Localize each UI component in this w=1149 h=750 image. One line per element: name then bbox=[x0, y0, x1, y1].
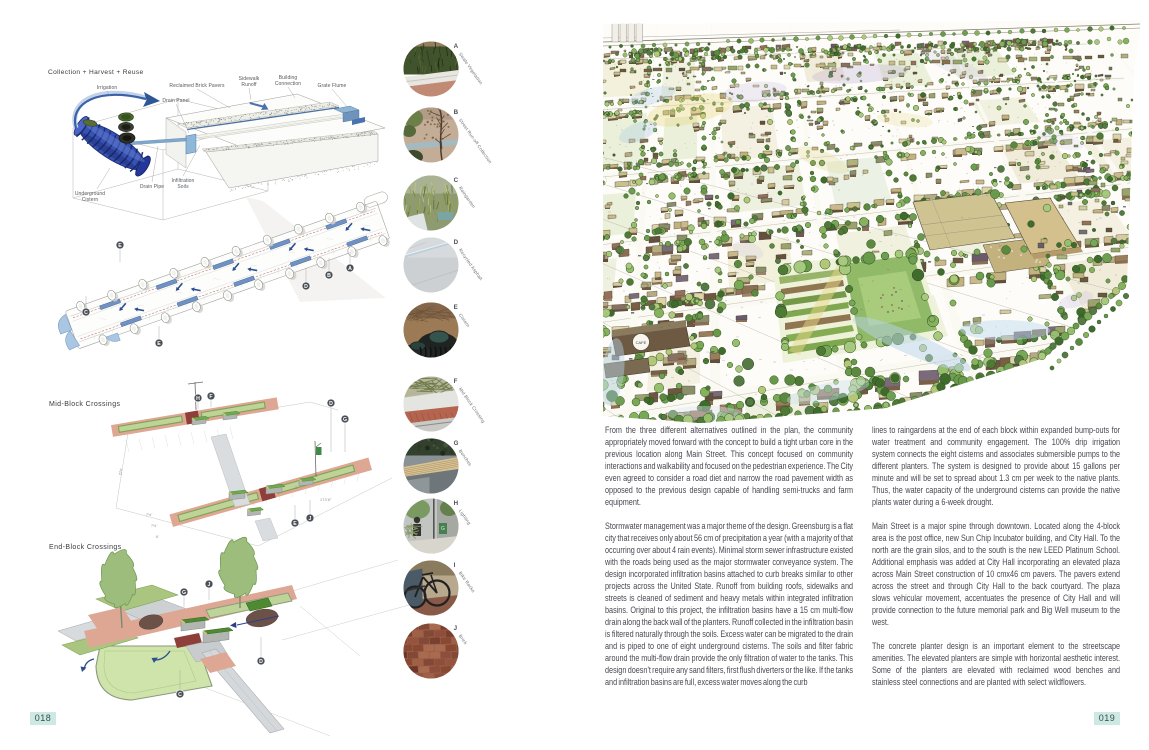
svg-text:173′8″: 173′8″ bbox=[320, 498, 332, 502]
svg-text:J: J bbox=[454, 625, 458, 632]
svg-text:End-Block Crossings: End-Block Crossings bbox=[49, 544, 122, 551]
svg-text:E: E bbox=[454, 304, 458, 311]
svg-text:Irrigation: Irrigation bbox=[97, 85, 118, 91]
svg-text:J: J bbox=[309, 516, 312, 522]
svg-text:Drain Pipe: Drain Pipe bbox=[140, 184, 164, 190]
svg-text:G: G bbox=[343, 417, 347, 423]
svg-text:Cistern: Cistern bbox=[82, 197, 99, 203]
svg-text:C: C bbox=[84, 310, 88, 316]
svg-text:G: G bbox=[454, 440, 459, 447]
svg-text:B: B bbox=[327, 273, 331, 279]
svg-text:C: C bbox=[454, 177, 459, 184]
svg-text:A: A bbox=[454, 43, 459, 50]
svg-text:D: D bbox=[454, 239, 459, 246]
svg-text:Grate Flume: Grate Flume bbox=[318, 83, 347, 89]
svg-text:E: E bbox=[293, 521, 297, 527]
svg-text:C: C bbox=[178, 692, 182, 698]
svg-text:D: D bbox=[259, 659, 263, 665]
svg-text:I: I bbox=[454, 562, 456, 569]
svg-text:F: F bbox=[209, 394, 212, 400]
svg-text:G: G bbox=[182, 590, 186, 596]
svg-text:7½': 7½' bbox=[151, 524, 158, 528]
svg-text:D: D bbox=[304, 284, 308, 290]
svg-text:J: J bbox=[208, 582, 211, 588]
svg-text:F: F bbox=[454, 378, 458, 385]
svg-text:H: H bbox=[196, 396, 200, 402]
svg-text:6': 6' bbox=[156, 535, 159, 539]
svg-text:Reclaimed Brick Pavers: Reclaimed Brick Pavers bbox=[169, 83, 225, 89]
svg-text:D: D bbox=[329, 401, 333, 407]
svg-text:Drain Panel: Drain Panel bbox=[162, 98, 189, 104]
svg-text:E: E bbox=[118, 243, 122, 249]
svg-text:A: A bbox=[348, 266, 352, 272]
svg-text:G: G bbox=[441, 526, 445, 532]
svg-text:E: E bbox=[157, 341, 161, 347]
svg-text:Connection: Connection bbox=[275, 81, 301, 87]
svg-text:Mid-Block Crossings: Mid-Block Crossings bbox=[49, 401, 120, 408]
svg-text:Collection + Harvest + Reuse: Collection + Harvest + Reuse bbox=[48, 69, 144, 76]
svg-text:Runoff: Runoff bbox=[241, 82, 257, 88]
svg-text:CAFE: CAFE bbox=[636, 340, 647, 345]
svg-text:8': 8' bbox=[295, 486, 298, 490]
svg-text:B: B bbox=[454, 109, 459, 116]
svg-text:Soils: Soils bbox=[177, 184, 189, 190]
svg-text:7½': 7½' bbox=[146, 513, 153, 517]
svg-text:H: H bbox=[454, 500, 459, 507]
